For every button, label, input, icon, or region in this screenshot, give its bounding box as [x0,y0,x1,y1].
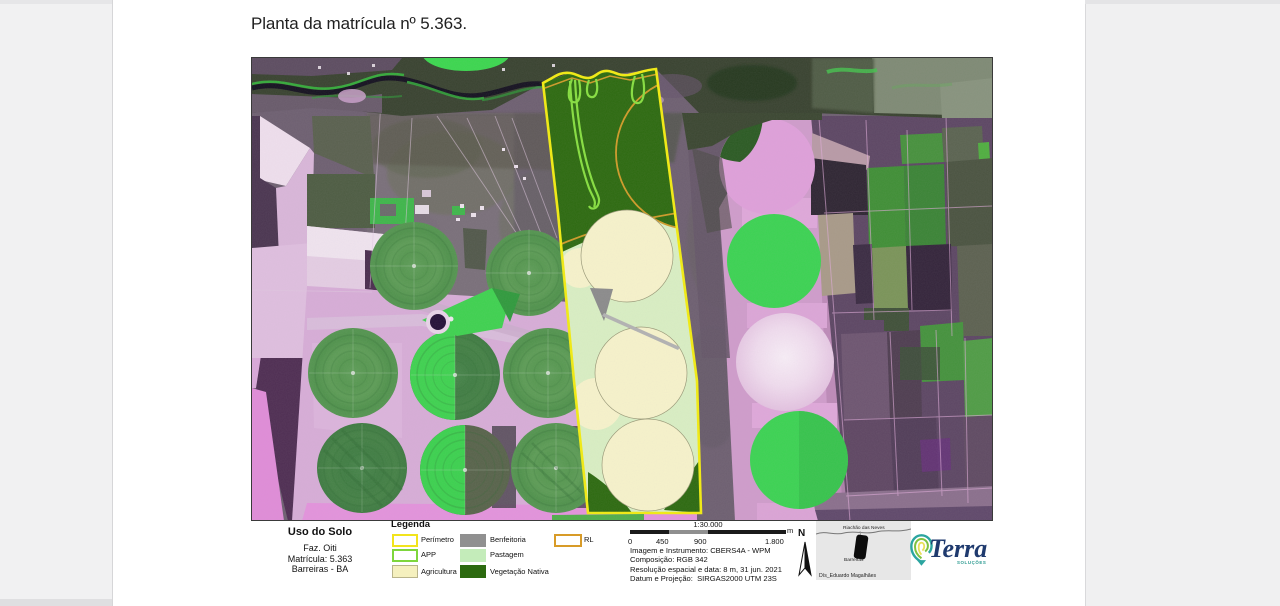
svg-text:Dís_Eduardo Magalhães: Dís_Eduardo Magalhães [819,573,877,579]
svg-text:SOLUÇÕES: SOLUÇÕES [957,560,986,565]
svg-text:Barreiras: Barreiras [844,557,864,563]
svg-text:Riachão das Neves: Riachão das Neves [843,525,885,531]
svg-text:Terra: Terra [929,534,987,563]
